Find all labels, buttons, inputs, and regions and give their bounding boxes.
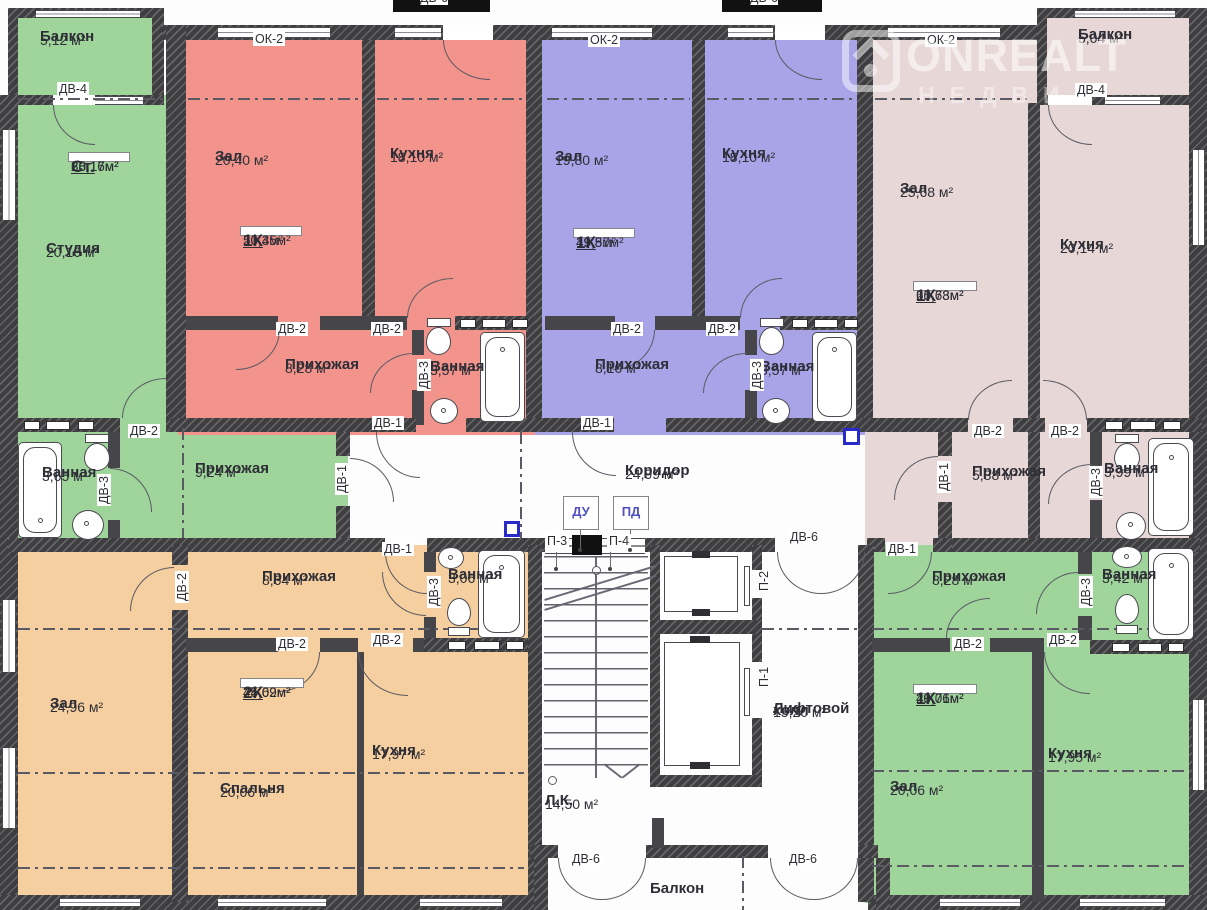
section-line: [188, 98, 360, 100]
door-label: ДВ-6: [787, 852, 819, 866]
sink: [72, 510, 104, 540]
wall: [933, 538, 952, 552]
floor-plan: ДВ-6 ДВ-6: [0, 0, 1207, 910]
wall: [1013, 418, 1045, 432]
door-label: ДВ-2: [128, 424, 160, 438]
wall: [872, 638, 950, 652]
toilet: [758, 318, 786, 358]
elevator-label: П-2: [757, 569, 771, 593]
window: [2, 130, 16, 220]
door-gap: [443, 25, 493, 40]
door-label: ДВ-3: [97, 474, 111, 506]
bathtub: [1148, 438, 1194, 536]
vent-box: [46, 421, 70, 430]
elevator-car-large: [664, 642, 740, 766]
door-arc: [376, 432, 420, 478]
vent-box: [792, 319, 808, 328]
vent-box: [814, 319, 838, 328]
unit-box-pink: 1К25,68м²60,73м²: [913, 281, 977, 291]
section-line: [762, 628, 858, 630]
vent-box: [512, 319, 528, 328]
toilet: [425, 318, 453, 358]
bathtub: [1148, 548, 1194, 640]
door-label: ДВ-3: [750, 359, 764, 391]
door-label: ДВ-2: [175, 571, 189, 603]
wall: [646, 845, 768, 858]
window: [420, 898, 502, 907]
fire-damper-symbol: ПД: [613, 496, 649, 530]
wall: [857, 25, 873, 432]
vent-box: [1112, 643, 1130, 652]
bathtub: [478, 550, 525, 638]
unit-box-studio: Ст.20,16м²38,17м²: [68, 152, 130, 162]
stairs: [544, 556, 648, 778]
door-label: ДВ-3: [1079, 576, 1093, 608]
wall: [752, 545, 762, 570]
door-label: ДВ-2: [276, 637, 308, 651]
wall: [412, 330, 424, 355]
wall: [186, 316, 278, 330]
section-line: [707, 98, 855, 100]
vent-box: [1163, 421, 1181, 430]
electrical-panel-symbol: [843, 428, 860, 445]
shaft-box: [572, 535, 602, 555]
toilet: [446, 598, 472, 638]
wall: [1037, 8, 1047, 105]
section-line: [18, 772, 524, 774]
door-label: ДВ-2: [611, 322, 643, 336]
window: [395, 27, 441, 38]
bathtub: [812, 332, 857, 422]
window: [940, 898, 1020, 907]
wall: [413, 638, 424, 652]
window: [218, 898, 326, 907]
window: [36, 10, 140, 18]
shaft-label: П-4: [607, 534, 631, 548]
window: [2, 600, 16, 672]
bathtub: [18, 442, 62, 538]
wall: [650, 775, 762, 787]
sink: [1116, 512, 1146, 540]
window: [1192, 700, 1205, 790]
vent-box: [460, 319, 476, 328]
wall: [752, 634, 762, 662]
unit-box-blue: 1К19,8м²49,57м²: [573, 228, 635, 238]
window-label: ОК-2: [253, 32, 285, 46]
wall: [526, 25, 542, 432]
wall: [152, 8, 164, 103]
door-label: ДВ-3: [427, 576, 441, 608]
wall: [172, 610, 188, 902]
electrical-panel-symbol: [504, 521, 520, 537]
wall: [652, 818, 664, 848]
wall: [1078, 552, 1092, 574]
wall: [938, 418, 968, 432]
door-label: ДВ-1: [937, 461, 951, 493]
door-gap: [53, 95, 95, 105]
door-arc: [777, 552, 821, 594]
section-line: [18, 98, 166, 100]
door-arc: [572, 432, 616, 476]
wall: [340, 538, 385, 552]
leader-dot: [628, 548, 632, 552]
elevator-car-small: [664, 556, 738, 612]
wall: [186, 638, 278, 652]
window: [1105, 96, 1160, 105]
vent-box: [78, 421, 94, 430]
door-label: ДВ-2: [972, 424, 1004, 438]
window: [60, 898, 140, 907]
wall: [8, 8, 18, 103]
wall: [166, 25, 186, 432]
section-line: [872, 865, 1192, 867]
door-label: ДВ-2: [1049, 424, 1081, 438]
smoke-control-symbol: ДУ: [563, 496, 599, 530]
wall: [545, 316, 615, 330]
wall: [320, 638, 358, 652]
wall: [692, 40, 705, 318]
section-line: [377, 98, 527, 100]
wall: [1090, 500, 1102, 540]
door-label: ДВ-2: [276, 322, 308, 336]
elevator-door-mark: [692, 551, 710, 558]
unit-box-orange: 2К45,02м²74,69м²: [240, 678, 304, 688]
section-line: [520, 432, 522, 538]
elevator-label: П-1: [757, 665, 771, 689]
sink: [430, 398, 458, 424]
section-line: [742, 856, 744, 910]
wall: [1028, 103, 1040, 548]
vent-box: [506, 641, 524, 650]
door-arc: [814, 858, 858, 900]
window: [2, 748, 16, 828]
leader-dot: [578, 548, 582, 552]
window: [1075, 10, 1175, 18]
sink: [1112, 546, 1142, 568]
vent-box: [1138, 643, 1162, 652]
door-label: ДВ-1: [372, 416, 404, 430]
wall: [362, 40, 375, 318]
elevator-door-mark: [692, 609, 710, 616]
window-label: ОК-2: [588, 33, 620, 47]
wall: [108, 520, 120, 540]
vent-box: [1105, 421, 1123, 430]
door-label: ДВ-6: [750, 0, 794, 7]
section-line: [18, 867, 524, 869]
section-line: [872, 770, 1192, 772]
door-gap: [775, 25, 825, 40]
wall: [858, 845, 878, 858]
elevator-door-mark: [690, 762, 710, 769]
door-label: ДВ-4: [1075, 83, 1107, 97]
door-label: ДВ-2: [1047, 633, 1079, 647]
door-label: ДВ-2: [952, 637, 984, 651]
window: [728, 27, 773, 38]
room-fill-pink-balcony: [1037, 8, 1200, 103]
wall: [530, 845, 558, 858]
bathtub: [480, 332, 525, 422]
shaft-label: П-3: [545, 534, 569, 548]
wall: [1090, 432, 1102, 466]
toilet: [1114, 594, 1140, 636]
vent-box: [482, 319, 506, 328]
wall: [752, 718, 762, 775]
wall: [650, 545, 660, 787]
vent-box: [448, 641, 466, 650]
door-label: ДВ-1: [335, 463, 349, 495]
wall: [745, 330, 757, 355]
door-label: ДВ-4: [57, 82, 89, 96]
elevator-door-panel: [744, 668, 750, 716]
door-label: ДВ-3: [417, 359, 431, 391]
vent-box: [474, 641, 500, 650]
door-label: ДВ-3: [1089, 466, 1103, 498]
wall: [666, 418, 938, 432]
door-label: ДВ-1: [886, 542, 918, 556]
sink: [762, 398, 790, 424]
door-label: ДВ-6: [788, 530, 820, 544]
wall: [938, 432, 952, 456]
window-label: ОК-2: [925, 33, 957, 47]
door-label: ДВ-1: [382, 542, 414, 556]
door-label: ДВ-6: [570, 852, 602, 866]
door-arc: [602, 858, 646, 900]
unit-box-green: 1К20,06м²49,71м²: [913, 684, 977, 694]
wall: [752, 598, 762, 620]
vent-box: [24, 421, 40, 430]
section-line: [547, 98, 690, 100]
wall: [534, 858, 548, 910]
window: [1080, 898, 1165, 907]
wall: [650, 620, 762, 634]
vent-box: [1130, 421, 1156, 430]
door-label: ДВ-2: [706, 322, 738, 336]
door-label: ДВ-1: [581, 416, 613, 430]
door-label: ДВ-6: [420, 0, 464, 7]
wall: [990, 638, 1044, 652]
door-label: ДВ-2: [371, 633, 403, 647]
door-label: ДВ-2: [371, 322, 403, 336]
vent-box: [1168, 643, 1184, 652]
section-line: [182, 428, 184, 538]
leader-line: [580, 530, 581, 549]
window: [1192, 150, 1205, 245]
wall: [172, 545, 188, 565]
door-arc: [350, 458, 394, 502]
vent-box: [844, 319, 858, 328]
wall: [336, 432, 350, 456]
elevator-door-panel: [744, 566, 750, 606]
section-line: [875, 98, 1027, 100]
unit-box-red: 1К20,4м²50,35м²: [240, 226, 302, 236]
elevator-door-mark: [690, 636, 710, 643]
